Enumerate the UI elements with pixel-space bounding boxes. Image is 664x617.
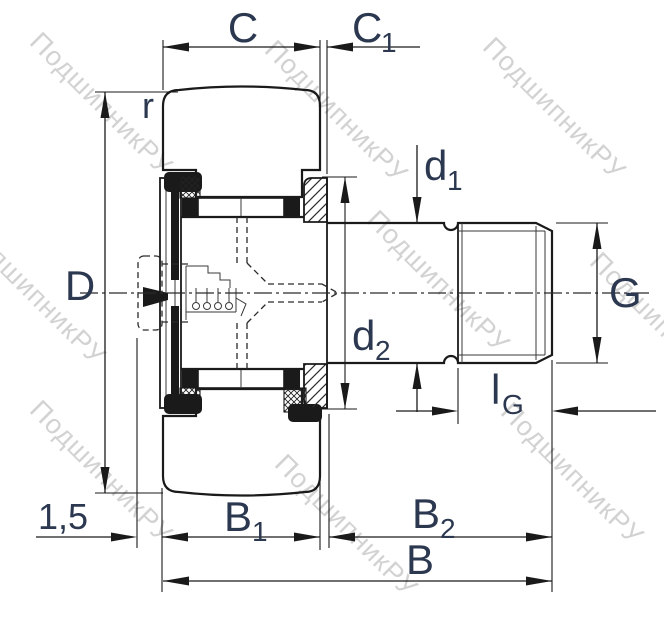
- dim-label-B1-sub: 1: [252, 516, 268, 547]
- cage-block-left: [182, 198, 198, 217]
- dim-label-d1: d: [424, 142, 447, 189]
- dim-lG: l G: [396, 360, 656, 592]
- watermark-layer: ПодшипникРУ ПодшипникРУ ПодшипникРУ Подш…: [0, 26, 664, 602]
- dim-label-B2: B: [412, 490, 440, 537]
- dim-B1: B 1: [162, 480, 320, 592]
- dim-label-G: G: [609, 269, 642, 316]
- dim-label-C1-sub: 1: [381, 27, 397, 58]
- dim-label-d2: d: [352, 312, 375, 359]
- cage-block-left: [182, 369, 198, 388]
- flange-seal-strip-top: [171, 182, 179, 280]
- dim-label-d1-sub: 1: [447, 165, 463, 196]
- dim-label-r: r: [142, 85, 154, 126]
- dim-label-B1: B: [224, 493, 252, 540]
- dim-label-1-5: 1,5: [38, 496, 88, 537]
- cage-block-right: [284, 198, 300, 217]
- watermark-text: ПодшипникРУ: [477, 31, 631, 185]
- dim-label-B2-sub: 2: [440, 513, 456, 544]
- dim-label-lG: l: [491, 366, 500, 413]
- dim-label-C: C: [228, 4, 258, 51]
- flange-seal-strip-bottom: [171, 306, 179, 404]
- watermark-text: ПодшипникРУ: [24, 26, 178, 180]
- seal-top-left: [180, 176, 200, 198]
- dim-label-C1: C: [352, 4, 382, 51]
- dim-label-B: B: [406, 536, 434, 583]
- needle-rollers-top: [182, 198, 300, 217]
- dim-label-D: D: [65, 262, 95, 309]
- dim-r: r: [142, 85, 154, 126]
- bearing-drawing: ПодшипникРУ ПодшипникРУ ПодшипникРУ Подш…: [0, 0, 664, 617]
- outer-ring-section: [163, 87, 320, 496]
- cage-block-right: [284, 369, 300, 388]
- watermark-text: ПодшипникРУ: [269, 448, 423, 602]
- dim-label-lG-sub: G: [502, 389, 524, 420]
- technical-drawing-page: ПодшипникРУ ПодшипникРУ ПодшипникРУ Подш…: [0, 0, 664, 617]
- dim-label-d2-sub: 2: [375, 335, 391, 366]
- needle-rollers-bottom: [182, 369, 300, 388]
- seal-lip-bottom-left: [164, 394, 202, 414]
